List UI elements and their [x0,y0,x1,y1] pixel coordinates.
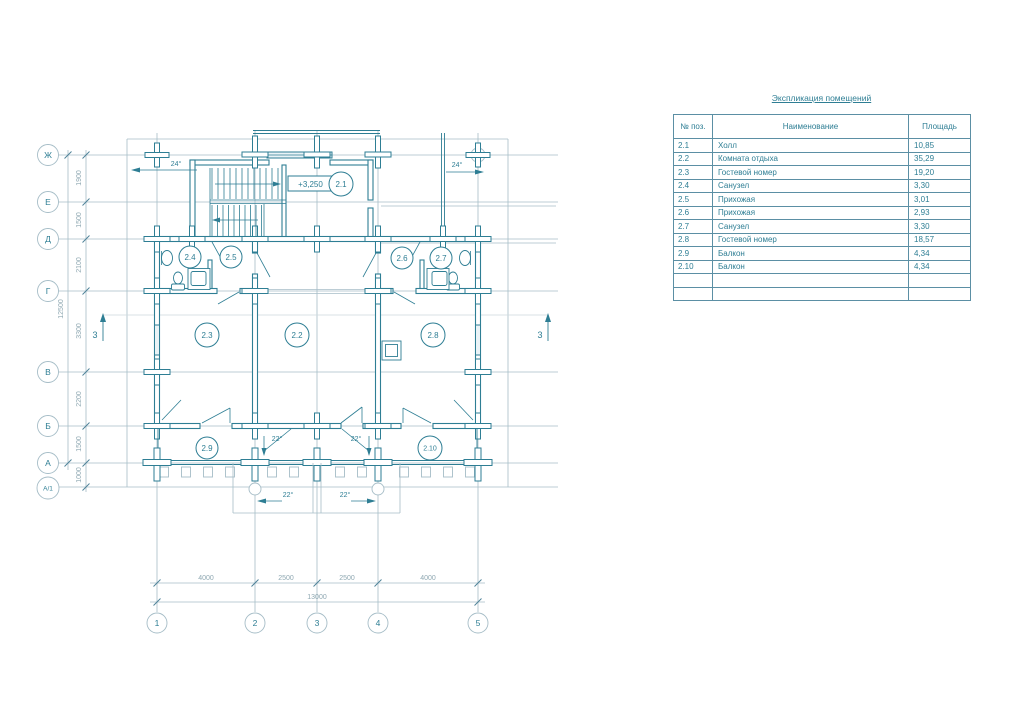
room-label-2-5: 2.5 [225,253,237,262]
table-header-row: № поз. Наименование Площадь [674,115,971,139]
cell-area: 4,34 [909,260,971,274]
dim-bottom-total: 13000 [307,594,327,601]
room-schedule: Экспликация помещений № поз. Наименовани… [673,93,970,301]
room-label-2-8: 2.8 [427,331,439,340]
walls [155,160,481,429]
dim-e-d: 1500 [76,212,83,228]
cell-area: 35,29 [909,152,971,166]
table-row: 2.3Гостевой номер19,20 [674,166,971,180]
cell-area: 19,20 [909,166,971,180]
cell-pos: 2.2 [674,152,713,166]
axis-bubbles-left: Ж Е Д Г В Б А А/1 [37,145,59,500]
axis-col-5: 5 [476,618,481,628]
cell-pos: 2.1 [674,139,713,153]
dim-1-2: 4000 [198,575,214,582]
table-row: 2.1Холл10,85 [674,139,971,153]
balcony-slope-label-left: 22° [272,435,283,443]
level-mark-value: +3,250 [298,180,323,189]
axis-bubbles-bottom: 1 2 3 4 5 [147,613,488,633]
cell-pos: 2.3 [674,166,713,180]
canopy-slope-label-right: 22° [340,491,351,499]
stove-icon [382,341,401,360]
axis-row-d: Д [45,234,51,244]
room-label-2-9: 2.9 [201,444,213,453]
roof-slope-label-right: 24° [452,161,463,169]
table-row: 2.6Прихожая2,93 [674,206,971,220]
room-label-2-6: 2.6 [396,254,408,263]
canopy-slope-label-left: 22° [283,491,294,499]
table-row: 2.5Прихожая3,01 [674,193,971,207]
table-row: 2.9Балкон4,34 [674,247,971,261]
cell-name: Комната отдыха [713,152,909,166]
section-label-right: 3 [537,330,542,340]
dim-g-v: 3300 [76,323,83,339]
cell-pos: 2.8 [674,233,713,247]
axis-row-g: Г [46,286,51,296]
cell-area: 4,34 [909,247,971,261]
cell-area: 18,57 [909,233,971,247]
table-title: Экспликация помещений [673,93,970,103]
balcony-slope-label-right: 22° [351,435,362,443]
table-row: 2.10Балкон4,34 [674,260,971,274]
table-row-empty [674,287,971,301]
room-label-2-3: 2.3 [201,331,213,340]
cell-area: 10,85 [909,139,971,153]
dim-4-5: 4000 [420,575,436,582]
axis-row-a1: А/1 [43,486,53,493]
left-dimension-chain: 1900 1500 2100 3300 2200 1500 1000 12500 [58,150,90,492]
cell-pos: 2.5 [674,193,713,207]
table-row-empty [674,274,971,288]
table-row: 2.8Гостевой номер18,57 [674,233,971,247]
cell-name: Санузел [713,220,909,234]
window-left [155,325,160,355]
cell-name: Санузел [713,179,909,193]
cell-name: Холл [713,139,909,153]
dim-left-total: 12500 [58,299,65,319]
axis-col-3: 3 [315,618,320,628]
roof-slope-label-left: 24° [171,160,182,168]
shower-tray-icon [188,269,210,290]
axis-col-1: 1 [155,618,160,628]
cell-area: 2,93 [909,206,971,220]
axis-row-a: А [45,458,51,468]
washbasin-icon [460,251,471,266]
axis-row-e: Е [45,197,51,207]
cell-pos: 2.6 [674,206,713,220]
dim-d-g: 2100 [76,257,83,273]
room-label-2-1: 2.1 [335,180,347,189]
section-label-left: 3 [92,330,97,340]
room-label-2-2: 2.2 [291,331,303,340]
section-line-3: 3 3 [92,313,551,341]
dim-a-a1: 1000 [76,467,83,483]
table-row: 2.4Санузел3,30 [674,179,971,193]
axis-col-4: 4 [376,618,381,628]
bottom-dimension-chain: 4000 2500 2500 4000 13000 [150,575,485,606]
cell-pos: 2.10 [674,260,713,274]
cell-name: Балкон [713,260,909,274]
cell-area: 3,30 [909,179,971,193]
cell-pos: 2.7 [674,220,713,234]
cell-name: Прихожая [713,193,909,207]
cell-area: 3,01 [909,193,971,207]
room-schedule-table: № поз. Наименование Площадь 2.1Холл10,85… [673,114,971,301]
dim-2-3: 2500 [278,575,294,582]
cell-name: Балкон [713,247,909,261]
dim-3-4: 2500 [339,575,355,582]
room-label-2-4: 2.4 [184,253,196,262]
cell-name: Прихожая [713,206,909,220]
cell-area: 3,30 [909,220,971,234]
axis-col-2: 2 [253,618,258,628]
col-header-pos: № поз. [674,115,713,139]
dim-v-b: 2200 [76,391,83,407]
table-row: 2.7Санузел3,30 [674,220,971,234]
cell-name: Гостевой номер [713,233,909,247]
shower-tray-icon [427,269,449,290]
cell-pos: 2.9 [674,247,713,261]
drawing-sheet: 3 3 [0,0,1024,724]
cell-name: Гостевой номер [713,166,909,180]
axis-row-zh: Ж [44,150,52,160]
window-right [476,325,481,355]
dim-b-a: 1500 [76,436,83,452]
axis-row-b: Б [45,421,51,431]
dim-zh-e: 1900 [76,170,83,186]
axis-row-v: В [45,367,51,377]
col-header-name: Наименование [713,115,909,139]
cell-pos: 2.4 [674,179,713,193]
col-header-area: Площадь [909,115,971,139]
washbasin-icon [162,251,173,266]
room-label-2-7: 2.7 [435,254,447,263]
table-row: 2.2Комната отдыха35,29 [674,152,971,166]
level-mark: +3,250 [288,176,333,191]
toilet-icon [172,272,185,290]
room-label-2-10: 2.10 [423,446,437,453]
